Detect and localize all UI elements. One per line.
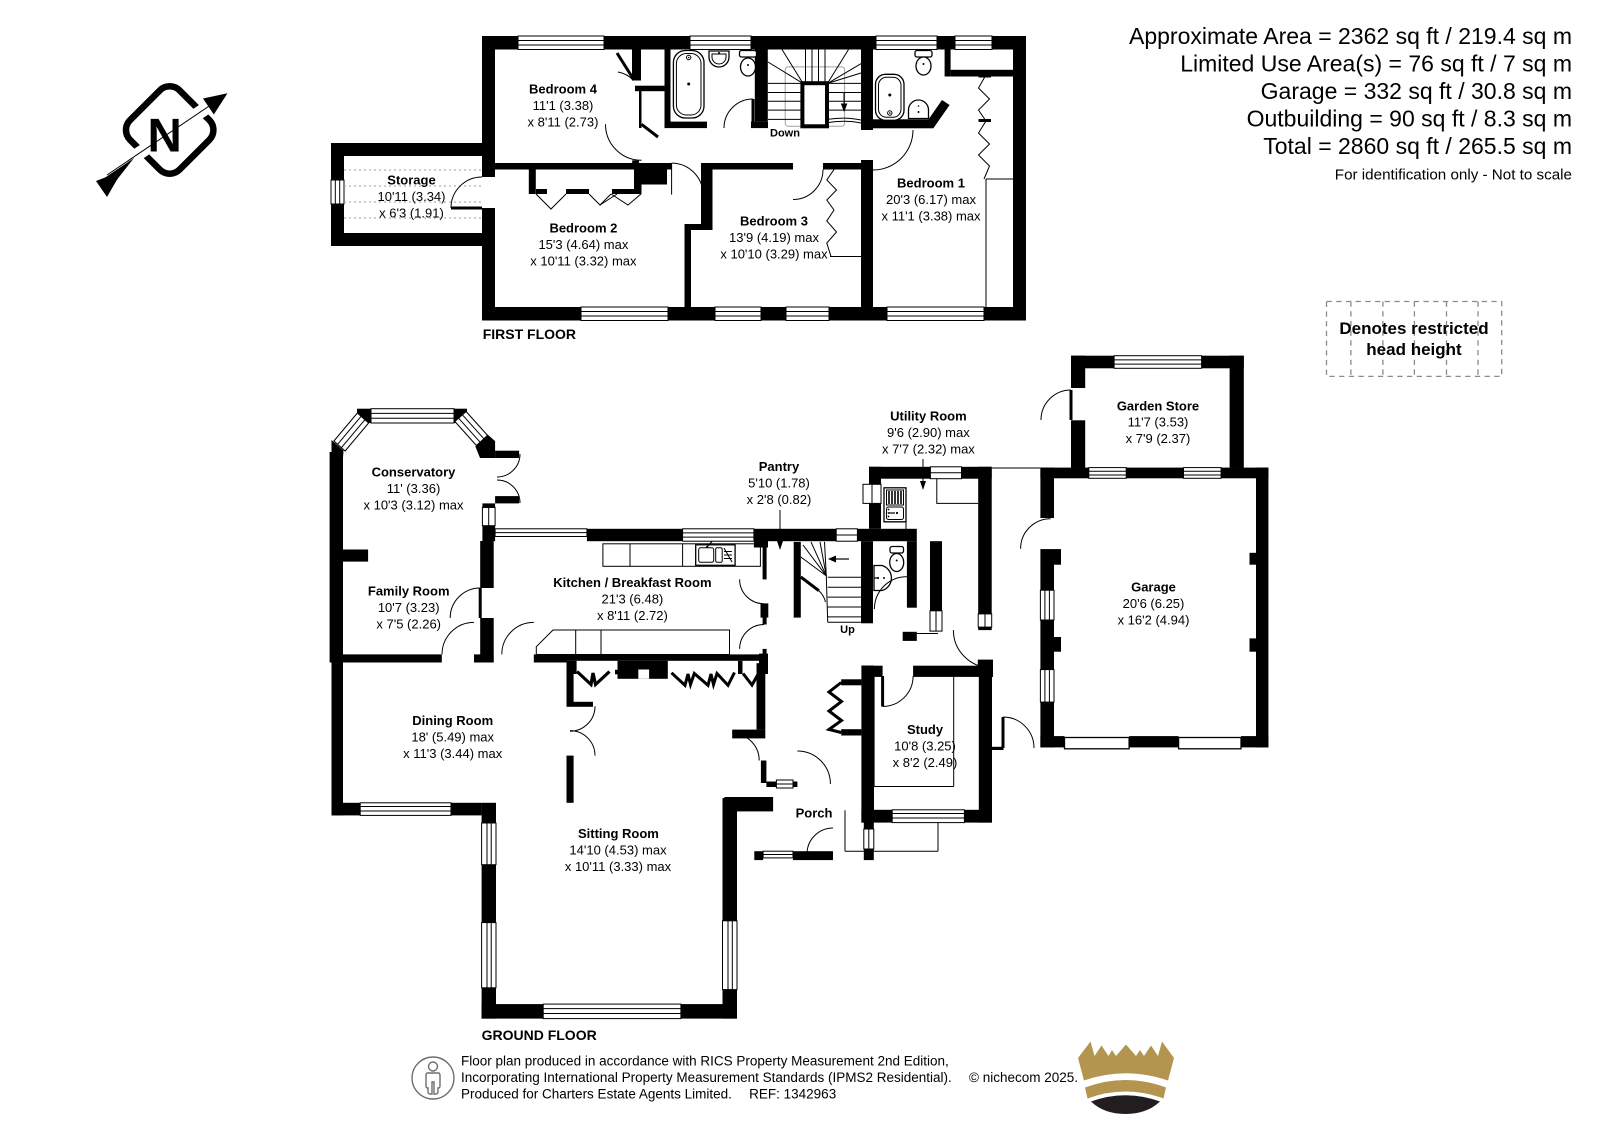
svg-text:Kitchen / Breakfast Room: Kitchen / Breakfast Room	[553, 575, 711, 590]
svg-text:5'10 (1.78): 5'10 (1.78)	[748, 476, 810, 491]
svg-text:Bedroom 1: Bedroom 1	[897, 176, 965, 191]
svg-text:10'11 (3.34): 10'11 (3.34)	[377, 189, 445, 204]
svg-text:x 7'5 (2.26): x 7'5 (2.26)	[376, 616, 441, 631]
svg-text:x 7'9 (2.37): x 7'9 (2.37)	[1126, 431, 1191, 446]
svg-text:Up: Up	[840, 624, 855, 636]
svg-text:x 10'11 (3.32) max: x 10'11 (3.32) max	[530, 254, 637, 269]
svg-text:Garage = 332 sq ft / 30.8 sq m: Garage = 332 sq ft / 30.8 sq m	[1261, 78, 1572, 104]
svg-text:Garden Store: Garden Store	[1117, 399, 1199, 414]
svg-text:Floor plan produced in accorda: Floor plan produced in accordance with R…	[461, 1053, 949, 1068]
svg-text:Study: Study	[907, 722, 944, 737]
svg-text:Dining Room: Dining Room	[412, 713, 493, 728]
svg-text:© nichecom 2025.: © nichecom 2025.	[969, 1070, 1078, 1085]
svg-text:Outbuilding = 90 sq ft / 8.3 s: Outbuilding = 90 sq ft / 8.3 sq m	[1247, 106, 1572, 132]
svg-text:x 2'8 (0.82): x 2'8 (0.82)	[747, 492, 812, 507]
svg-text:Sitting Room: Sitting Room	[578, 826, 659, 841]
svg-text:x 8'2 (2.49): x 8'2 (2.49)	[893, 755, 958, 770]
svg-text:21'3 (6.48): 21'3 (6.48)	[602, 592, 664, 607]
svg-text:11'1 (3.38): 11'1 (3.38)	[533, 98, 594, 113]
svg-text:11' (3.36): 11' (3.36)	[387, 481, 441, 496]
svg-text:For identification only - Not: For identification only - Not to scale	[1335, 167, 1572, 184]
svg-text:Garage: Garage	[1131, 580, 1176, 595]
svg-text:Bedroom 4: Bedroom 4	[529, 82, 598, 97]
svg-text:x 10'10 (3.29) max: x 10'10 (3.29) max	[720, 247, 828, 262]
svg-text:x 8'11 (2.73): x 8'11 (2.73)	[528, 115, 599, 130]
svg-text:20'3 (6.17) max: 20'3 (6.17) max	[886, 192, 976, 207]
svg-text:head height: head height	[1366, 340, 1462, 359]
svg-text:Produced for Charters Estate A: Produced for Charters Estate Agents Limi…	[461, 1086, 836, 1101]
svg-text:Limited Use Area(s) = 76 sq ft: Limited Use Area(s) = 76 sq ft / 7 sq m	[1180, 51, 1572, 77]
svg-text:Conservatory: Conservatory	[372, 464, 457, 479]
svg-text:Denotes restricted: Denotes restricted	[1339, 319, 1488, 338]
svg-text:Approximate Area = 2362 sq ft: Approximate Area = 2362 sq ft / 219.4 sq…	[1129, 23, 1572, 49]
svg-text:x 8'11 (2.72): x 8'11 (2.72)	[597, 608, 668, 623]
svg-text:Pantry: Pantry	[759, 459, 800, 474]
svg-text:13'9 (4.19) max: 13'9 (4.19) max	[729, 230, 819, 245]
svg-text:x 11'3 (3.44) max: x 11'3 (3.44) max	[403, 746, 503, 761]
svg-text:x 11'1 (3.38) max: x 11'1 (3.38) max	[881, 209, 981, 224]
svg-text:x 10'3 (3.12) max: x 10'3 (3.12) max	[363, 497, 464, 512]
svg-text:Family Room: Family Room	[368, 583, 450, 598]
svg-text:Utility Room: Utility Room	[890, 409, 967, 424]
svg-text:FIRST FLOOR: FIRST FLOOR	[483, 326, 576, 342]
svg-text:Bedroom 3: Bedroom 3	[740, 214, 808, 229]
svg-text:20'6 (6.25): 20'6 (6.25)	[1123, 596, 1185, 611]
svg-text:Porch: Porch	[796, 806, 833, 821]
svg-text:Incorporating International Pr: Incorporating International Property Mea…	[461, 1070, 952, 1085]
svg-text:Storage: Storage	[387, 172, 435, 187]
svg-text:N: N	[148, 110, 182, 163]
svg-text:x 7'7 (2.32) max: x 7'7 (2.32) max	[882, 442, 975, 457]
svg-text:11'7 (3.53): 11'7 (3.53)	[1128, 415, 1189, 430]
svg-text:10'8 (3.25): 10'8 (3.25)	[894, 739, 956, 754]
svg-text:14'10 (4.53) max: 14'10 (4.53) max	[569, 843, 667, 858]
svg-text:x 16'2 (4.94): x 16'2 (4.94)	[1118, 613, 1190, 628]
svg-text:GROUND FLOOR: GROUND FLOOR	[482, 1027, 597, 1043]
svg-text:10'7 (3.23): 10'7 (3.23)	[378, 600, 440, 615]
svg-text:15'3 (4.64) max: 15'3 (4.64) max	[538, 237, 628, 252]
svg-text:x 10'11 (3.33) max: x 10'11 (3.33) max	[565, 859, 672, 874]
svg-text:Total = 2860 sq ft / 265.5 sq: Total = 2860 sq ft / 265.5 sq m	[1263, 133, 1572, 159]
svg-text:Down: Down	[770, 128, 800, 140]
svg-text:18' (5.49) max: 18' (5.49) max	[411, 730, 494, 745]
svg-text:x 6'3 (1.91): x 6'3 (1.91)	[379, 205, 444, 220]
svg-text:9'6 (2.90) max: 9'6 (2.90) max	[887, 425, 970, 440]
svg-text:Bedroom 2: Bedroom 2	[549, 221, 617, 236]
